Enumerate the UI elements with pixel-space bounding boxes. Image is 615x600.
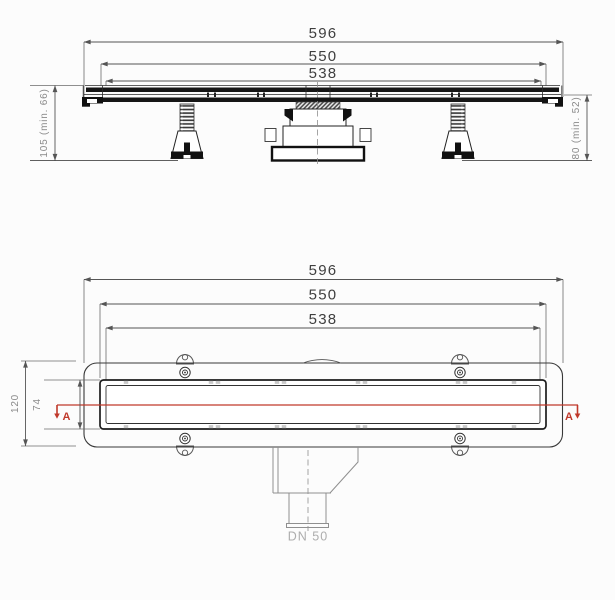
- trap-base-box: [272, 147, 364, 161]
- outlet-body: [273, 447, 358, 493]
- dim-538-plan-extension-lines: [106, 328, 540, 384]
- channel-top-band: [86, 88, 559, 93]
- end-cap-left-step: [82, 104, 90, 107]
- foot-right-spring: [451, 104, 465, 131]
- foot-left-base-notch: [184, 155, 191, 159]
- dim-120-reference-lines: [21, 361, 76, 446]
- section-arrow-a-left: [54, 414, 60, 419]
- dimension-550-plan: 550: [100, 287, 546, 379]
- side-view: 596 550 538: [30, 25, 592, 167]
- end-cap-right-step: [555, 104, 563, 107]
- dim-538-plan-label: 538: [309, 311, 338, 328]
- dimension-120: 120: [10, 361, 76, 446]
- leveling-foot-right: [442, 104, 474, 159]
- section-label-a-right: A: [565, 411, 573, 423]
- foot-left-stem: [184, 143, 190, 152]
- outlet-label: DN 50: [288, 530, 328, 544]
- channel-body-side: [84, 86, 561, 103]
- screw-bottom-left: [180, 433, 190, 443]
- end-cap-right-notch: [548, 99, 558, 103]
- outlet: DN 50: [273, 447, 358, 544]
- dimension-538-plan: 538: [106, 311, 540, 384]
- end-cap-left-notch: [87, 99, 97, 103]
- trap-gasket: [296, 102, 340, 109]
- plan-view: 596 550 538: [10, 262, 580, 544]
- dim-538-label: 538: [309, 65, 338, 82]
- trap-middle-box: [283, 126, 353, 147]
- dim-596-label: 596: [309, 25, 338, 42]
- dim-120-label: 120: [10, 394, 21, 413]
- screw-bottom-right: [455, 433, 465, 443]
- dim-550-plan-label: 550: [309, 287, 338, 304]
- dimension-80-right: 80 (min. 52): [564, 95, 592, 161]
- dimension-538-side: 538: [106, 65, 541, 86]
- screw-dot: [459, 438, 461, 440]
- trap-tab-right: [360, 129, 371, 142]
- foot-left-spring: [180, 104, 194, 131]
- dim-74-label: 74: [32, 398, 43, 411]
- dimension-105-left: 105 (min. 66): [30, 86, 84, 161]
- shower-drain-drawing: 596 550 538: [0, 0, 615, 600]
- dim-550-label: 550: [309, 48, 338, 65]
- dim-105-label: 105 (min. 66): [39, 88, 50, 157]
- trap-upper-box: [290, 109, 346, 126]
- leveling-foot-left: [171, 104, 203, 159]
- channel-bottom-band: [92, 98, 553, 103]
- outlet-pipe-flare: [287, 524, 329, 528]
- dim-596-plan-label: 596: [309, 262, 338, 279]
- section-label-a-left: A: [63, 411, 71, 423]
- outlet-pipe: [289, 493, 326, 524]
- screw-dot: [459, 372, 461, 374]
- foot-right-base-notch: [455, 155, 462, 159]
- screw-dot: [184, 372, 186, 374]
- foot-right-stem: [455, 143, 461, 152]
- technical-drawing-sheet: 596 550 538: [0, 0, 615, 600]
- trap-tab-left: [265, 129, 276, 142]
- section-arrow-a-right: [575, 414, 581, 419]
- screw-top-left: [180, 367, 190, 377]
- screw-dot: [184, 438, 186, 440]
- screw-top-right: [455, 367, 465, 377]
- dim-80-label: 80 (min. 52): [571, 97, 582, 160]
